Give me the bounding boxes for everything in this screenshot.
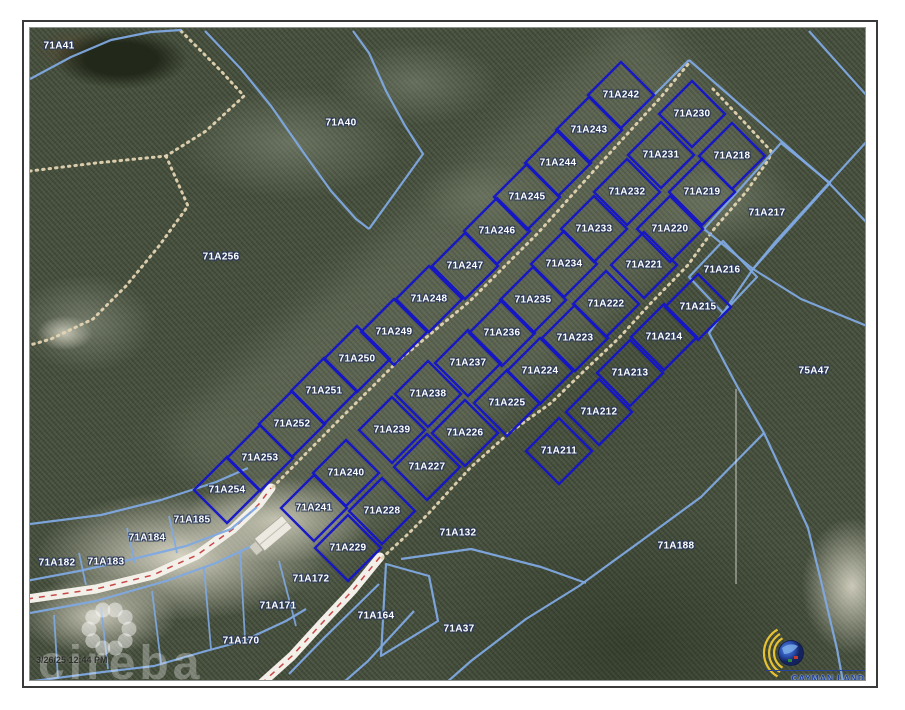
parcel-boundary-71A239: [359, 397, 425, 463]
parcel-boundary-71A253: [227, 425, 293, 491]
parcel-boundary-71A221: [611, 232, 677, 298]
print-timestamp: 3/26/25 12:44 PM: [36, 655, 108, 665]
subdivision-grid: [194, 62, 765, 581]
parcel-overlay: [29, 27, 866, 681]
building-footprint: [248, 516, 293, 557]
map-page: 71A4171A4071A25675A4771A21771A21671A1857…: [0, 0, 905, 710]
parcel-boundary-71A240: [313, 440, 379, 506]
parcel-boundary-71A247: [432, 233, 498, 299]
parcel-boundary-71A243: [556, 97, 622, 163]
parcel-boundary-71A251: [291, 358, 357, 424]
caymanlandinfo-logo: CAYMAN LAND INFO www.caymanlandinfo.ky: [724, 626, 866, 681]
parcel-boundary-71A238: [395, 361, 461, 427]
parcel-boundary-71A242: [588, 62, 654, 128]
map-viewport[interactable]: 71A4171A4071A25675A4771A21771A21671A1857…: [29, 27, 866, 681]
parcel-boundary-71A215: [665, 274, 731, 340]
parcel-boundary-71A233: [561, 196, 627, 262]
parcel-boundary-71A250: [324, 326, 390, 392]
parcel-boundary-71A236: [469, 300, 535, 366]
parcel-boundary-71A241: [281, 475, 347, 541]
parcel-boundary-71A226: [432, 400, 498, 466]
parcel-boundary-71A248: [396, 266, 462, 332]
parcel-boundary-71A234: [531, 231, 597, 297]
parcel-boundary-71A246: [464, 198, 530, 264]
parcel-boundary-71A252: [259, 391, 325, 457]
parcel-boundary-71A249: [361, 299, 427, 365]
parcel-boundary-71A224: [507, 338, 573, 404]
parcel-boundary-71A228: [349, 478, 415, 544]
cadastral-boundaries: [29, 30, 866, 681]
logo-title: CAYMAN LAND INFO: [766, 670, 865, 681]
parcel-boundary-71A230: [659, 81, 725, 147]
